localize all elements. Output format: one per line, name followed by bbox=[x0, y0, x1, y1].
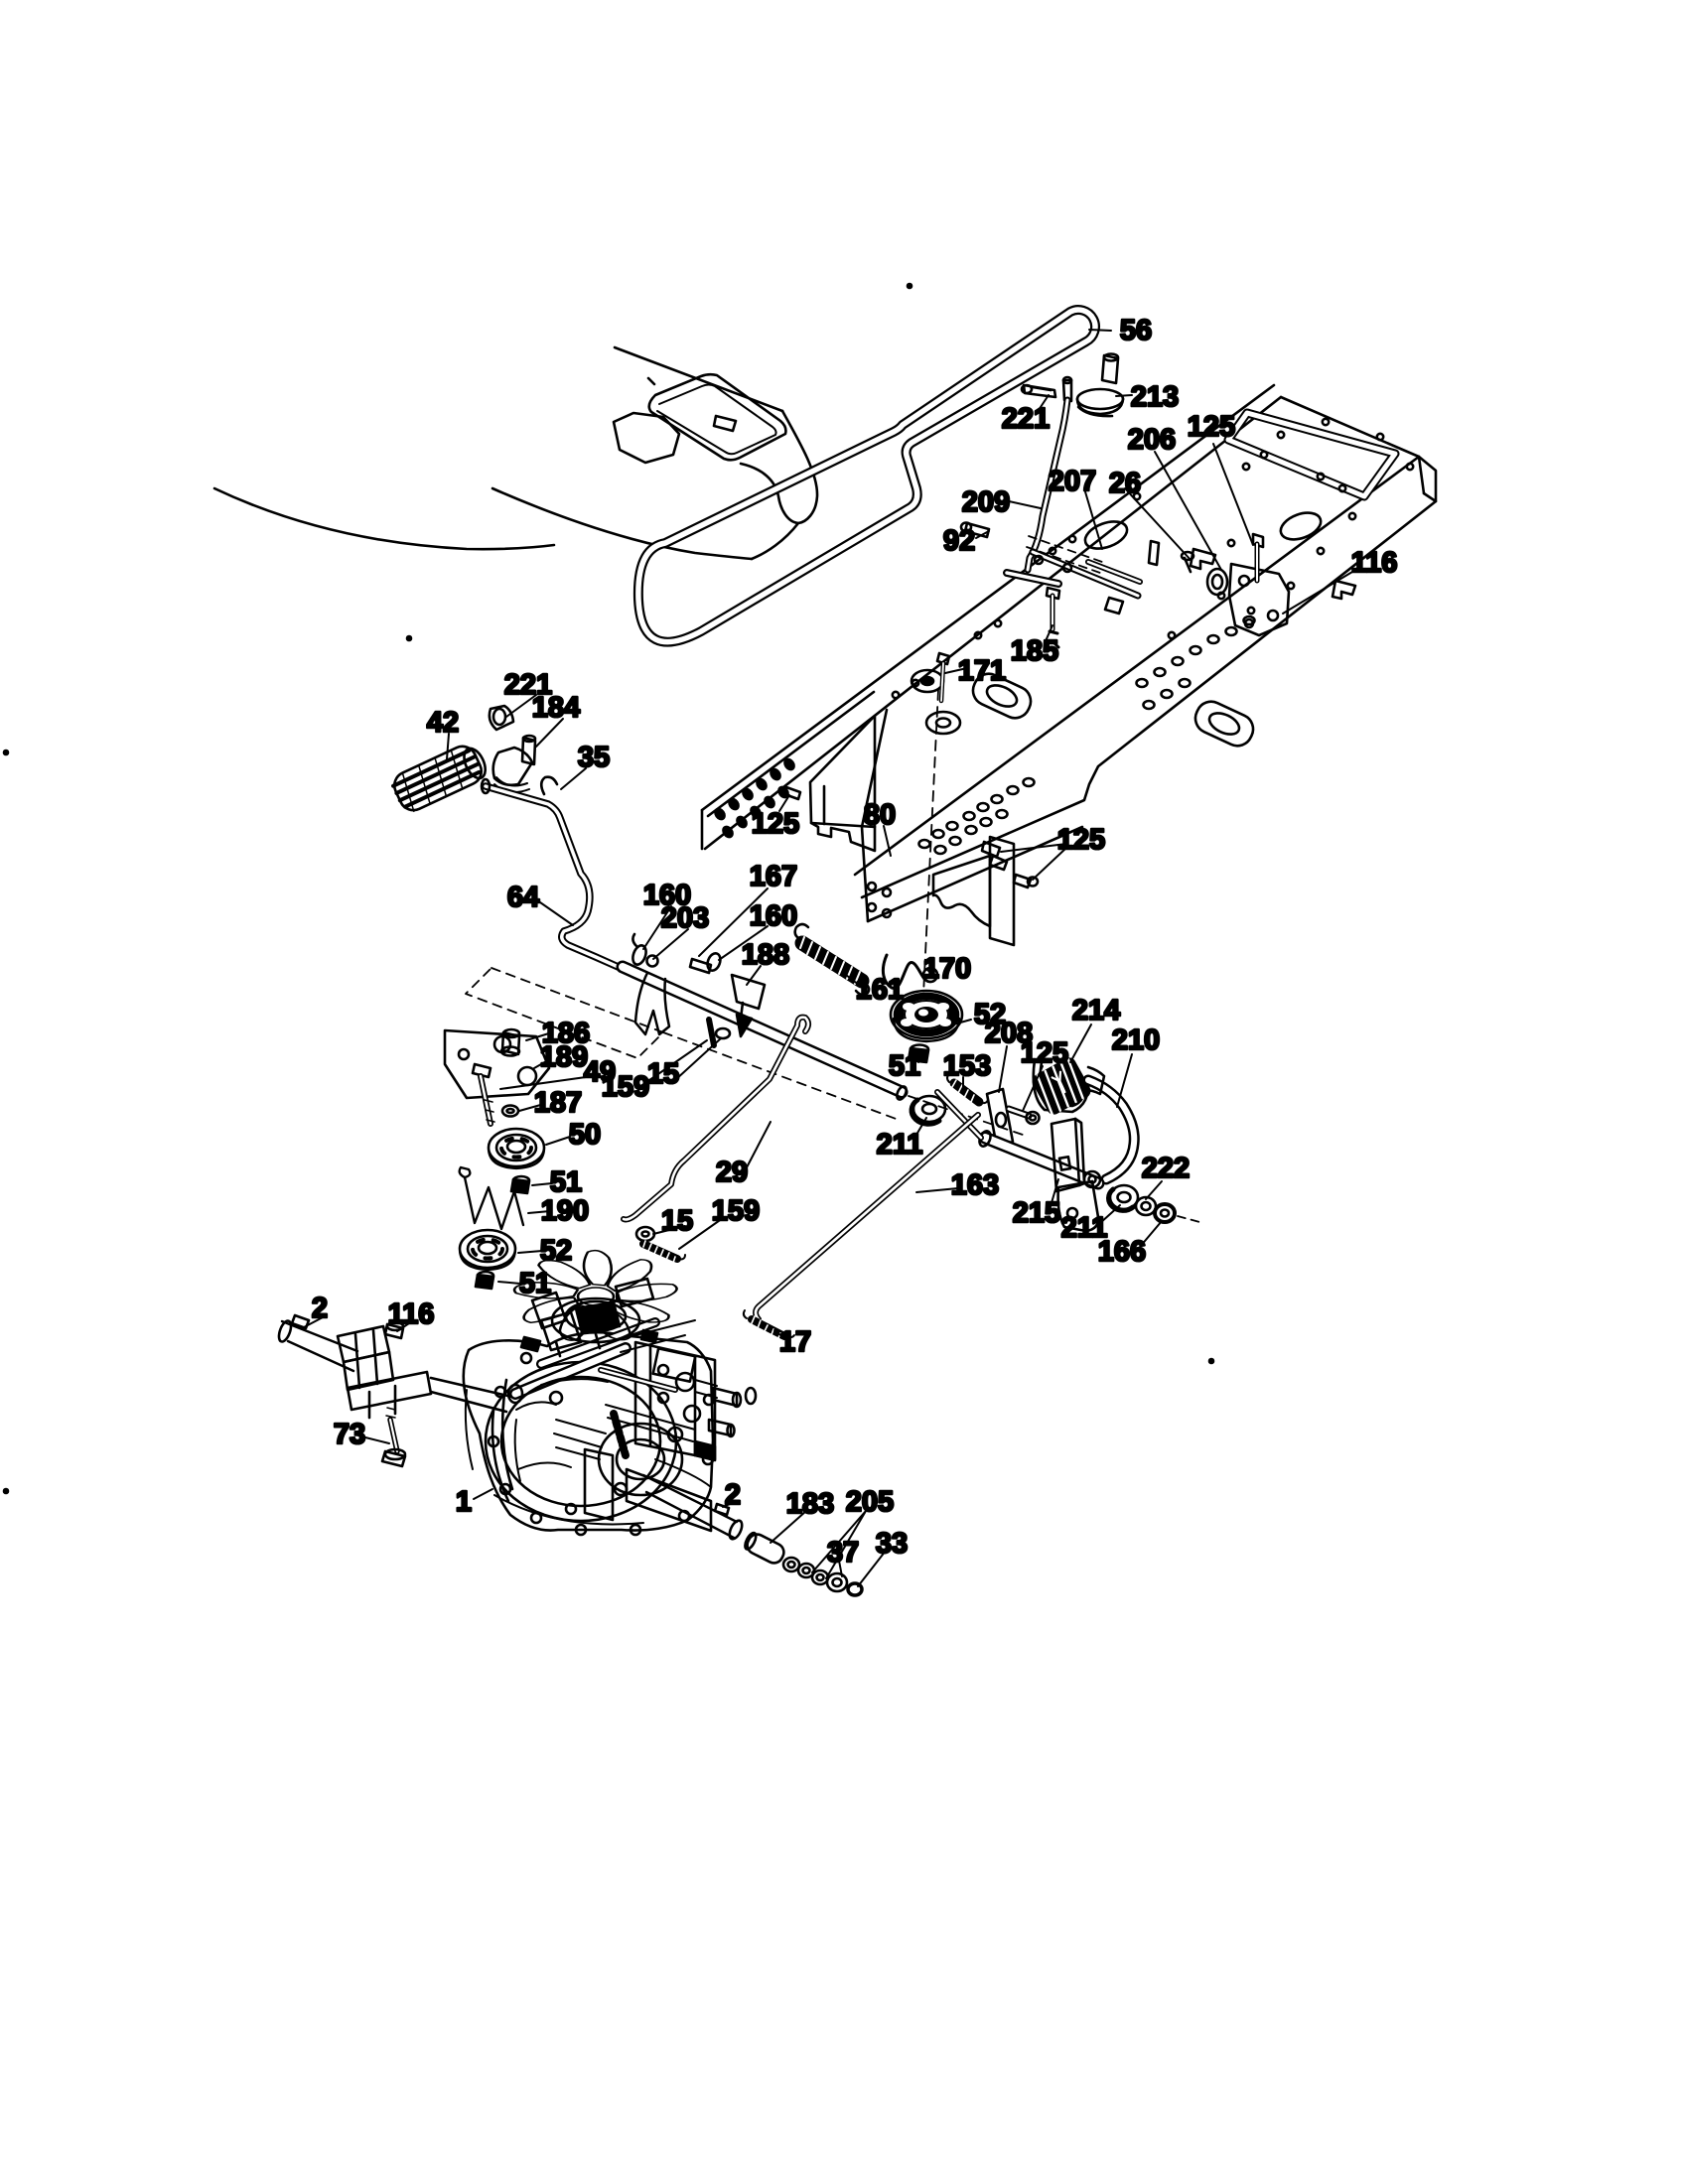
svg-text:213: 213 bbox=[1131, 381, 1179, 413]
svg-text:209: 209 bbox=[962, 486, 1010, 518]
svg-text:185: 185 bbox=[1011, 635, 1058, 667]
svg-text:215: 215 bbox=[1013, 1197, 1060, 1229]
svg-text:188: 188 bbox=[742, 939, 789, 971]
svg-text:17: 17 bbox=[779, 1326, 811, 1358]
svg-text:153: 153 bbox=[943, 1050, 991, 1082]
svg-text:116: 116 bbox=[1351, 547, 1398, 579]
svg-text:51: 51 bbox=[519, 1268, 551, 1299]
svg-text:42: 42 bbox=[427, 707, 459, 739]
svg-text:29: 29 bbox=[716, 1157, 748, 1188]
svg-text:92: 92 bbox=[943, 525, 975, 557]
svg-text:210: 210 bbox=[1112, 1024, 1160, 1056]
svg-text:170: 170 bbox=[923, 953, 971, 985]
svg-text:50: 50 bbox=[569, 1119, 601, 1151]
svg-text:161: 161 bbox=[856, 974, 904, 1006]
svg-text:56: 56 bbox=[1120, 315, 1152, 346]
svg-text:159: 159 bbox=[712, 1195, 760, 1227]
svg-text:203: 203 bbox=[661, 902, 709, 934]
svg-text:1: 1 bbox=[456, 1486, 472, 1518]
svg-text:160: 160 bbox=[750, 900, 797, 932]
svg-text:171: 171 bbox=[958, 655, 1006, 687]
svg-text:15: 15 bbox=[661, 1205, 693, 1237]
svg-text:80: 80 bbox=[864, 799, 896, 831]
svg-text:189: 189 bbox=[540, 1041, 588, 1073]
svg-text:214: 214 bbox=[1072, 995, 1120, 1026]
svg-text:206: 206 bbox=[1128, 424, 1176, 456]
svg-text:125: 125 bbox=[752, 808, 799, 840]
svg-text:221: 221 bbox=[1002, 403, 1050, 435]
svg-text:159: 159 bbox=[602, 1071, 649, 1103]
svg-text:187: 187 bbox=[534, 1087, 582, 1119]
svg-text:166: 166 bbox=[1098, 1236, 1146, 1268]
svg-text:35: 35 bbox=[578, 742, 610, 773]
svg-text:125: 125 bbox=[1021, 1037, 1068, 1069]
svg-text:125: 125 bbox=[1188, 411, 1235, 443]
svg-text:167: 167 bbox=[750, 861, 797, 892]
svg-text:125: 125 bbox=[1057, 824, 1105, 856]
svg-text:211: 211 bbox=[877, 1129, 923, 1160]
svg-text:163: 163 bbox=[951, 1169, 999, 1201]
svg-text:184: 184 bbox=[532, 692, 580, 724]
svg-text:183: 183 bbox=[786, 1488, 834, 1520]
svg-text:222: 222 bbox=[1142, 1153, 1190, 1184]
svg-text:33: 33 bbox=[876, 1528, 908, 1560]
svg-text:51: 51 bbox=[550, 1166, 582, 1198]
svg-text:51: 51 bbox=[889, 1050, 920, 1082]
svg-text:37: 37 bbox=[827, 1537, 859, 1569]
svg-text:116: 116 bbox=[388, 1298, 435, 1330]
svg-text:26: 26 bbox=[1109, 468, 1141, 499]
svg-text:52: 52 bbox=[540, 1235, 572, 1267]
svg-text:64: 64 bbox=[507, 882, 539, 913]
svg-text:207: 207 bbox=[1049, 466, 1096, 497]
svg-text:205: 205 bbox=[846, 1486, 894, 1518]
svg-text:73: 73 bbox=[334, 1419, 365, 1450]
